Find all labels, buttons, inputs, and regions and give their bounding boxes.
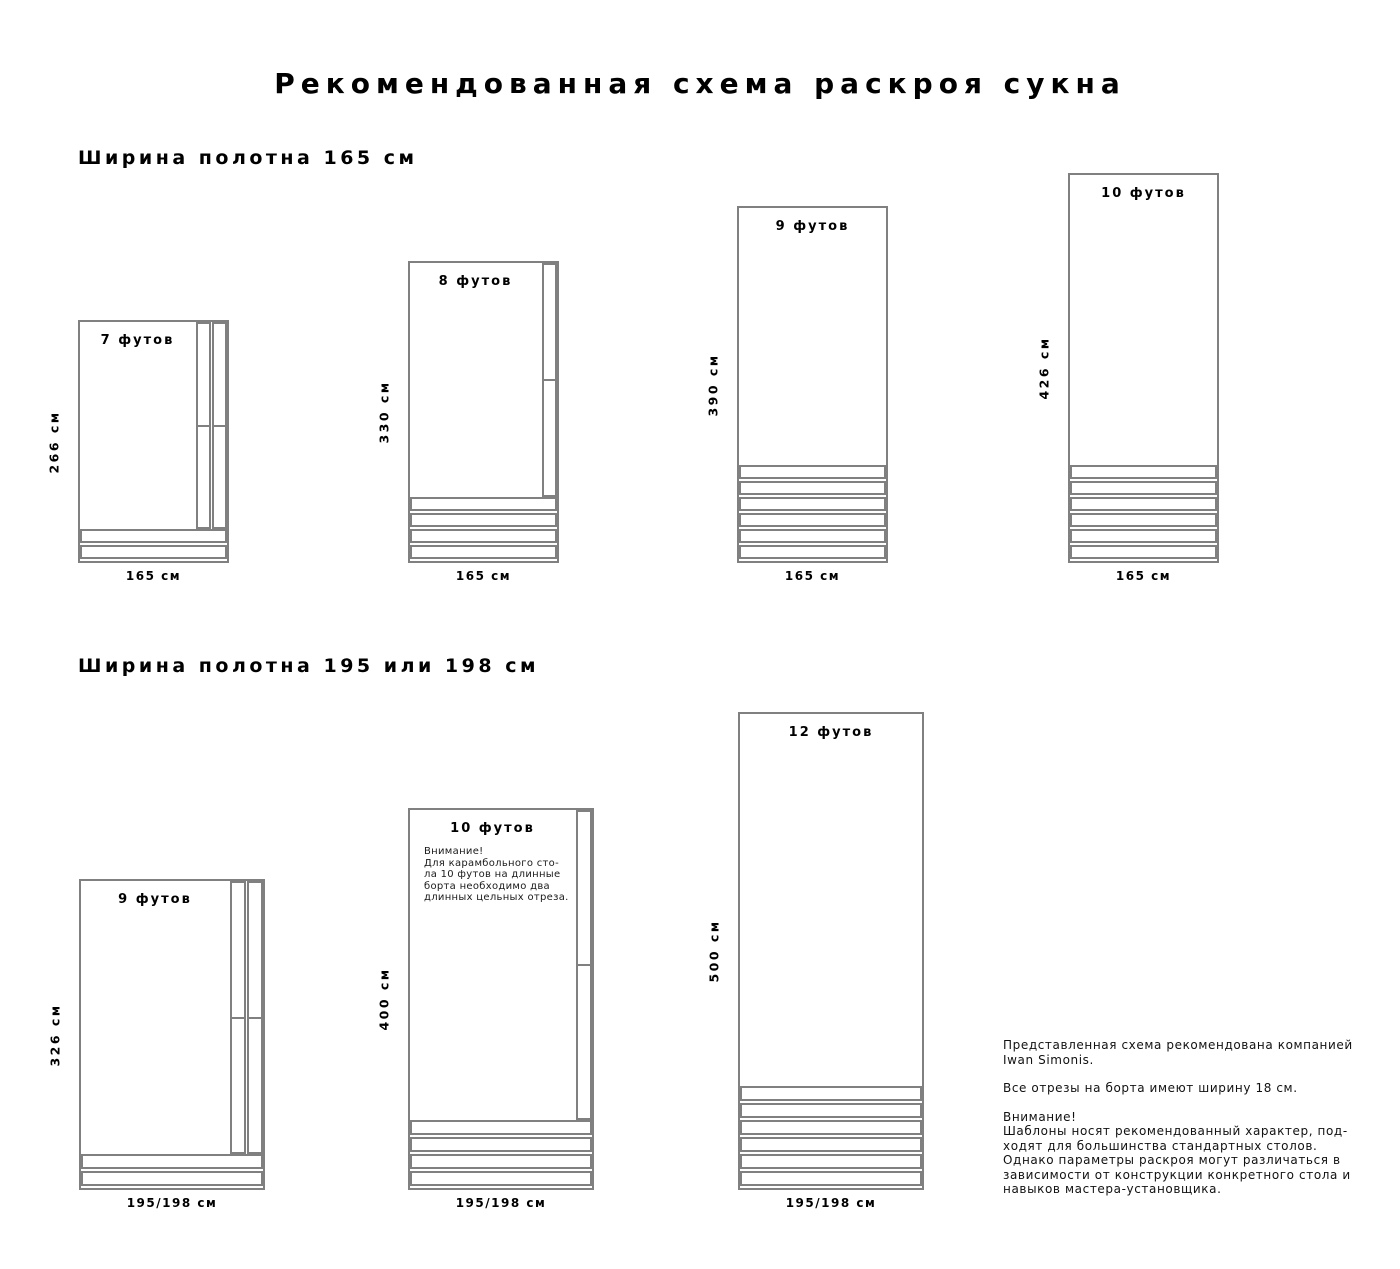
diagram-width-label: 165 см [78, 569, 229, 583]
page-title: Рекомендованная схема раскроя сукна [0, 67, 1400, 100]
rail-strip-horizontal [739, 497, 886, 511]
diagram-height-label: 390 см [706, 353, 721, 416]
diagram-width-label: 165 см [408, 569, 559, 583]
rail-strip-horizontal [1070, 497, 1217, 511]
diagram-width-label: 195/198 см [408, 1196, 594, 1210]
rail-strip-divider [576, 964, 592, 966]
diagram-height-label: 326 см [48, 1003, 63, 1066]
rail-strip-horizontal [1070, 481, 1217, 495]
rail-strip-divider [542, 379, 557, 381]
rail-strip-vertical [247, 881, 263, 1154]
diagram-width-label: 165 см [1068, 569, 1219, 583]
rail-strip-vertical [230, 881, 246, 1154]
diagram-7ft: 7 футов266 см165 см [78, 320, 229, 563]
rail-strip-horizontal [410, 529, 557, 543]
footer-notes: Представленная схема рекомендована компа… [1003, 1038, 1393, 1211]
diagram-size-label: 10 футов [410, 821, 575, 836]
diagram-height-label-wrap: 266 см [42, 320, 66, 563]
rail-strip-divider [196, 425, 211, 427]
diagram-height-label-wrap: 390 см [701, 206, 725, 563]
diagram-10ft-wide: 10 футовВнимание! Для карамбольного сто-… [408, 808, 594, 1190]
section-heading-165: Ширина полотна 165 см [78, 147, 418, 169]
rail-strip-divider [230, 1017, 246, 1019]
diagram-width-label: 195/198 см [738, 1196, 924, 1210]
diagram-size-label: 10 футов [1070, 186, 1217, 201]
rail-strip-horizontal [739, 465, 886, 479]
rail-strip-vertical [212, 322, 227, 529]
rail-strip-horizontal [1070, 545, 1217, 559]
diagram-height-label: 400 см [377, 967, 392, 1030]
rail-strip-horizontal [740, 1086, 922, 1101]
section-heading-195-198: Ширина полотна 195 или 198 см [78, 655, 539, 677]
diagram-height-label: 426 см [1037, 336, 1052, 399]
rail-strip-horizontal [410, 545, 557, 559]
rail-strip-horizontal [740, 1120, 922, 1135]
rail-strip-horizontal [740, 1137, 922, 1152]
diagram-height-label: 500 см [707, 919, 722, 982]
rail-strip-horizontal [1070, 465, 1217, 479]
rail-strip-horizontal [740, 1154, 922, 1169]
rail-strip-horizontal [410, 497, 557, 511]
diagram-note: Внимание! Для карамбольного сто- ла 10 ф… [424, 846, 574, 904]
rail-strip-horizontal [410, 1137, 592, 1152]
rail-strip-horizontal [740, 1171, 922, 1186]
diagram-9ft-wide: 9 футов326 см195/198 см [79, 879, 265, 1190]
rail-strip-horizontal [80, 545, 227, 559]
diagram-10ft: 10 футов426 см165 см [1068, 173, 1219, 563]
rail-strip-horizontal [1070, 513, 1217, 527]
rail-strip-horizontal [410, 513, 557, 527]
diagram-8ft: 8 футов330 см165 см [408, 261, 559, 563]
diagram-9ft: 9 футов390 см165 см [737, 206, 888, 563]
rail-strip-horizontal [1070, 529, 1217, 543]
diagram-height-label-wrap: 500 см [702, 712, 726, 1190]
rail-strip-horizontal [410, 1171, 592, 1186]
rail-strip-vertical [196, 322, 211, 529]
rail-strip-vertical [576, 810, 592, 1120]
rail-strip-horizontal [81, 1171, 263, 1186]
diagram-height-label: 330 см [377, 380, 392, 443]
footer-note-warning: Внимание! Шаблоны носят рекомендованный … [1003, 1110, 1393, 1197]
diagram-height-label: 266 см [47, 410, 62, 473]
rail-strip-horizontal [80, 529, 227, 543]
diagram-height-label-wrap: 326 см [43, 879, 67, 1190]
diagram-width-label: 165 см [737, 569, 888, 583]
diagram-size-label: 12 футов [740, 725, 922, 740]
diagram-size-label: 7 футов [80, 333, 195, 348]
diagram-12ft-wide: 12 футов500 см195/198 см [738, 712, 924, 1190]
diagram-width-label: 195/198 см [79, 1196, 265, 1210]
diagram-size-label: 8 футов [410, 274, 541, 289]
rail-strip-horizontal [739, 481, 886, 495]
rail-strip-vertical [542, 263, 557, 497]
rail-strip-divider [212, 425, 227, 427]
footer-note-strip-width: Все отрезы на борта имеют ширину 18 см. [1003, 1081, 1393, 1096]
rail-strip-divider [247, 1017, 263, 1019]
rail-strip-horizontal [410, 1120, 592, 1135]
diagram-height-label-wrap: 330 см [372, 261, 396, 563]
rail-strip-horizontal [740, 1103, 922, 1118]
rail-strip-horizontal [739, 545, 886, 559]
rail-strip-horizontal [739, 513, 886, 527]
diagram-size-label: 9 футов [81, 892, 229, 907]
diagram-size-label: 9 футов [739, 219, 886, 234]
diagram-height-label-wrap: 426 см [1032, 173, 1056, 563]
rail-strip-horizontal [739, 529, 886, 543]
rail-strip-horizontal [81, 1154, 263, 1169]
footer-note-recommended-by: Представленная схема рекомендована компа… [1003, 1038, 1393, 1067]
rail-strip-horizontal [410, 1154, 592, 1169]
diagram-height-label-wrap: 400 см [372, 808, 396, 1190]
